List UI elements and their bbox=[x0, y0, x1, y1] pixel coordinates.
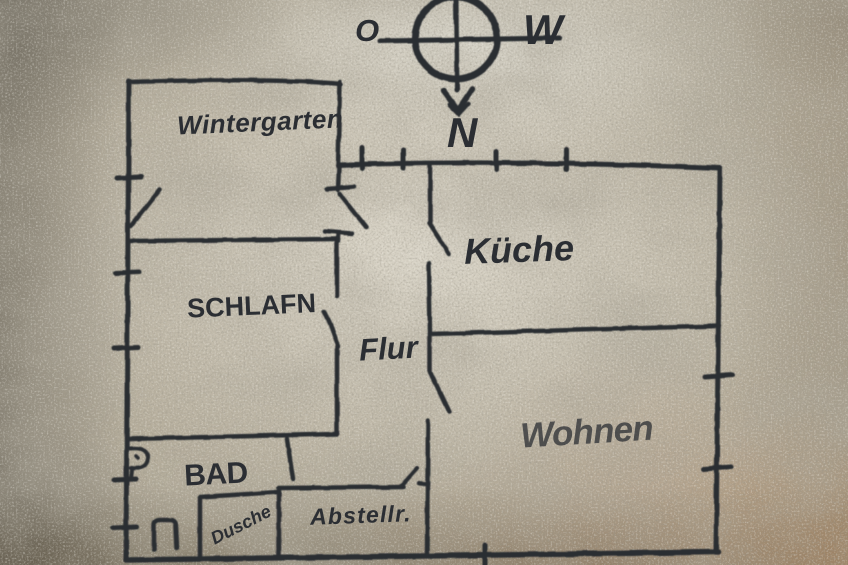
svg-text:SCHLAFN: SCHLAFN bbox=[186, 288, 316, 324]
svg-text:N: N bbox=[447, 109, 479, 156]
svg-text:Flur: Flur bbox=[358, 329, 420, 367]
svg-text:Küche: Küche bbox=[463, 227, 574, 272]
svg-text:Wohnen: Wohnen bbox=[519, 409, 654, 456]
svg-text:Abstellr.: Abstellr. bbox=[309, 500, 412, 530]
svg-text:O: O bbox=[355, 13, 379, 48]
svg-text:BAD: BAD bbox=[183, 456, 248, 492]
svg-text:W: W bbox=[523, 6, 566, 53]
